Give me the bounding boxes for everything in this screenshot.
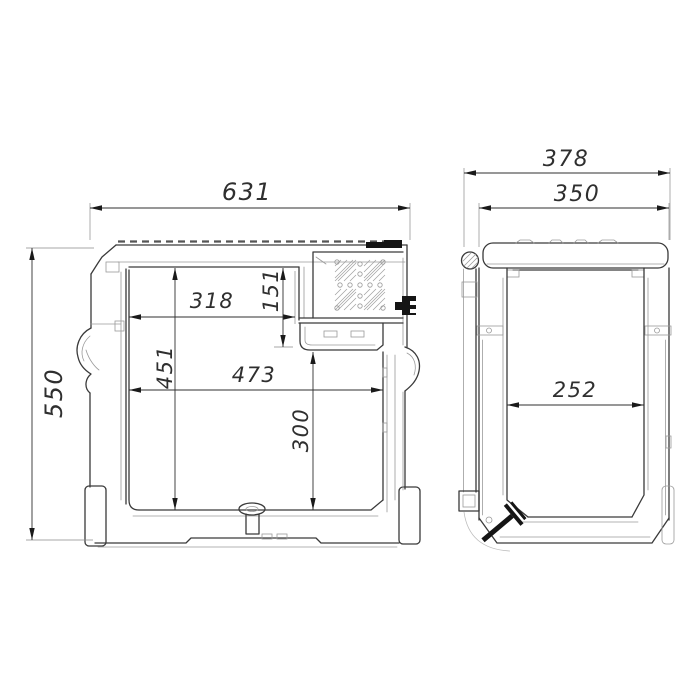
compressor-foot2 (351, 331, 364, 337)
evaporator-step-inner (305, 327, 375, 345)
dim-inner-width-label: 252 (553, 378, 598, 402)
compressor-compartment (299, 240, 416, 350)
right-grip-pocket (405, 347, 419, 391)
drain-cap-inner (246, 507, 258, 512)
dim-inner-height-under-recess: 300 (289, 352, 316, 510)
dim-overall-depth-label: 378 (543, 147, 590, 172)
side-tub-right-wall (632, 268, 644, 517)
dim-body-depth-label: 350 (554, 182, 601, 207)
right-grip-pocket-detail (407, 353, 415, 375)
front-drain-plug (239, 503, 265, 534)
side-right-foot (662, 486, 674, 544)
cooler-dimension-drawing: 631 550 318 151 (0, 0, 700, 700)
dim-inner-height-under-recess-label: 300 (289, 408, 313, 453)
dim-overall-height-label: 550 (40, 368, 68, 418)
drain-cap (239, 503, 265, 515)
lid-latch (106, 262, 119, 272)
lid-left-corner (91, 245, 116, 274)
dim-overall-height: 550 (26, 248, 94, 540)
power-socket (395, 296, 416, 315)
fan-grille (335, 260, 385, 310)
left-corner-foot (85, 486, 106, 546)
fan-panel-diagonal (316, 257, 326, 264)
side-latch-bracket-right (645, 326, 671, 335)
power-socket-slot2 (410, 309, 416, 313)
power-socket-slot1 (410, 301, 416, 305)
drain-stem (246, 514, 259, 534)
dim-overall-width-label: 631 (222, 178, 272, 206)
dim-body-depth-ext (479, 203, 669, 247)
drawing-canvas: 631 550 318 151 (0, 0, 700, 700)
dim-inner-width: 252 (507, 378, 644, 408)
dim-inner-width-top-label: 318 (190, 289, 235, 313)
dim-overall-width-ext (90, 203, 410, 240)
handle-pivot-hatch (463, 253, 478, 268)
front-inner-tub (115, 267, 395, 516)
handle-joint (462, 282, 477, 297)
side-lid (483, 240, 668, 268)
dim-recess-height: 151 (259, 268, 293, 347)
side-tub-left-wall (507, 268, 528, 517)
side-latch-bracket-left (477, 326, 503, 335)
dim-recess-height-label: 151 (259, 268, 283, 313)
inner-wall-bump (115, 321, 124, 331)
right-corner-foot (399, 487, 420, 544)
side-tub-lip-right (632, 270, 644, 277)
front-view-dimensions: 631 550 318 151 (26, 178, 410, 540)
compressor-foot1 (324, 331, 337, 337)
dim-inner-width-bottom-label: 473 (232, 363, 277, 387)
dim-overall-width: 631 (90, 178, 410, 240)
power-socket-tab (395, 302, 402, 310)
dim-overall-depth-ext (464, 168, 670, 247)
side-tub-lip-left (507, 270, 519, 277)
handle-pivot-screw (486, 517, 492, 523)
dim-body-depth: 350 (479, 182, 669, 247)
handle-bottom-bracket-inner (463, 495, 475, 507)
handle-bottom-bracket (459, 491, 479, 511)
front-lid (91, 242, 407, 275)
front-view: 631 550 318 151 (26, 178, 420, 547)
evaporator-step-outline (300, 323, 383, 350)
side-view: 378 350 252 (459, 147, 674, 551)
base-bottom-line (95, 538, 399, 543)
left-grip-pocket-detail2 (86, 350, 99, 370)
dim-inner-height-total: 451 (153, 268, 178, 510)
dim-inner-height-total-label: 451 (153, 345, 177, 390)
side-handle (459, 252, 510, 551)
